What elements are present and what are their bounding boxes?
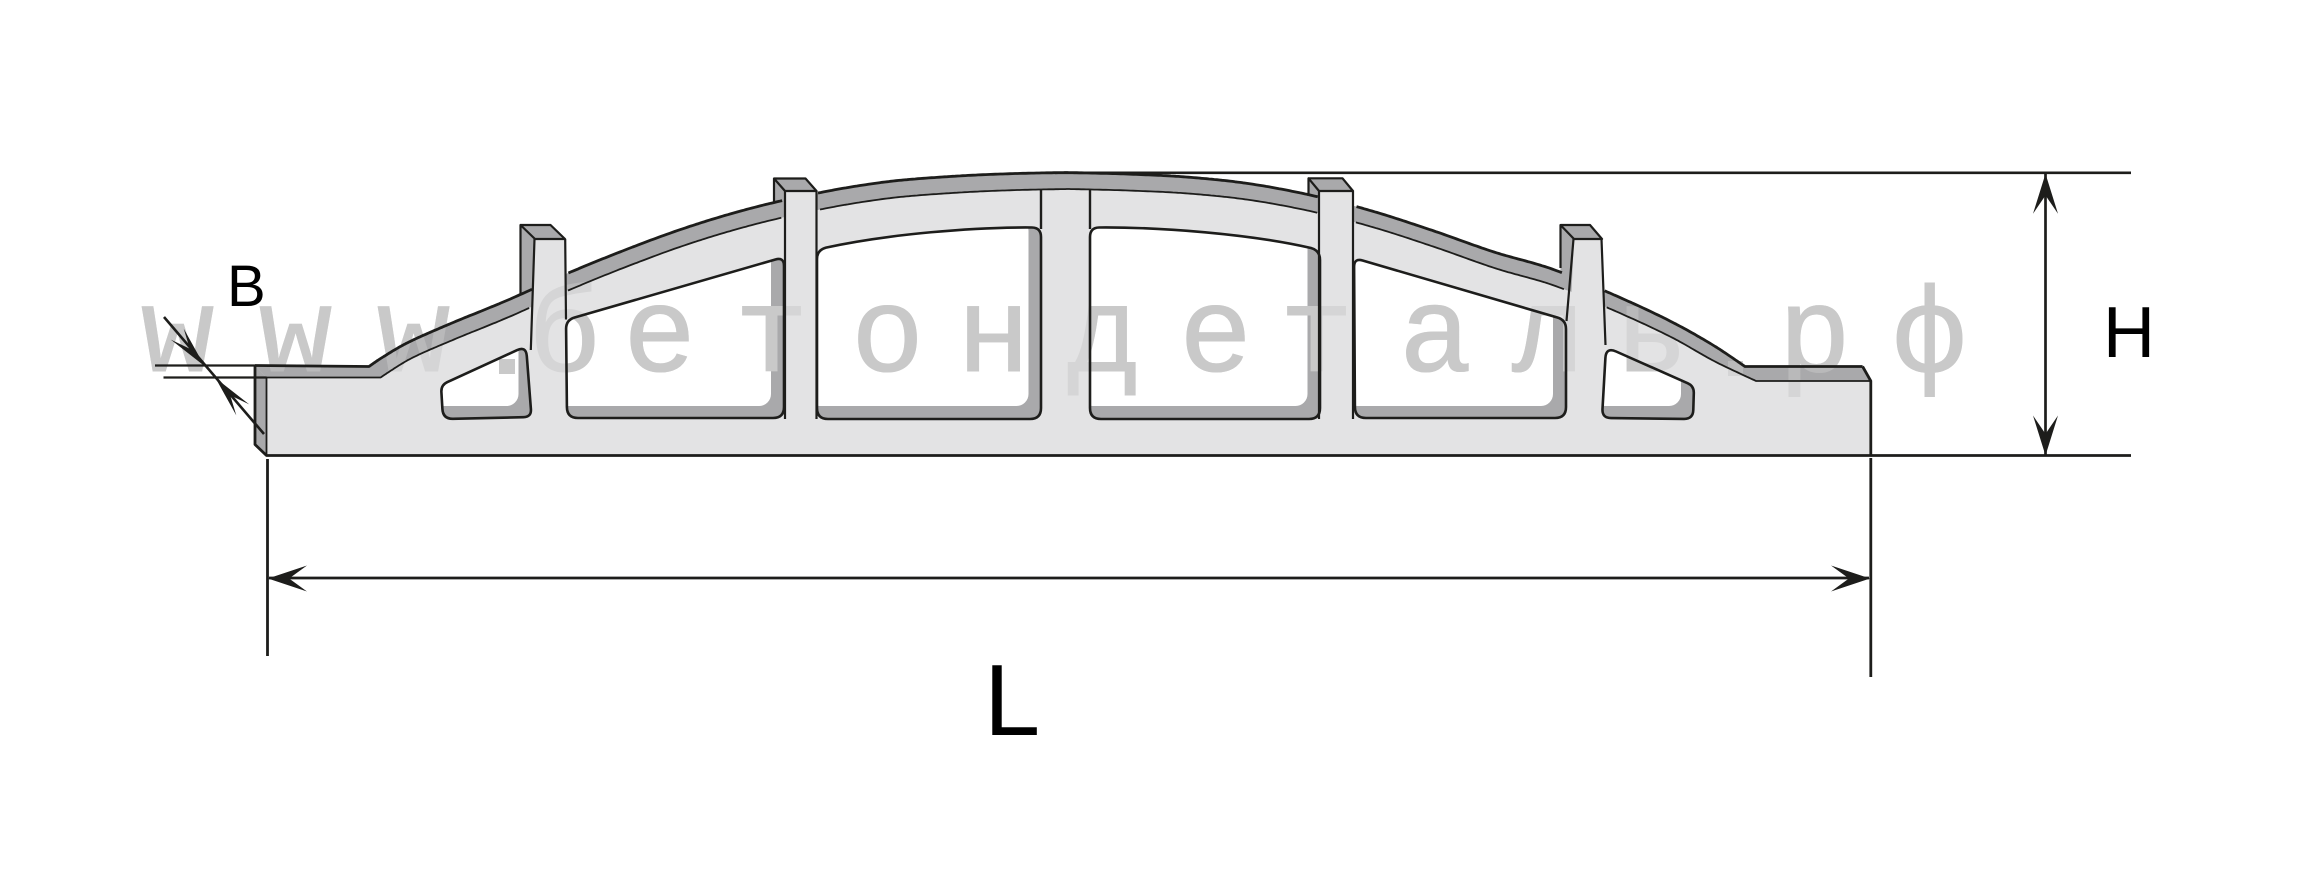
svg-text:H: H — [2103, 293, 2155, 373]
svg-text:L: L — [984, 645, 1040, 757]
svg-text:B: B — [227, 254, 266, 319]
